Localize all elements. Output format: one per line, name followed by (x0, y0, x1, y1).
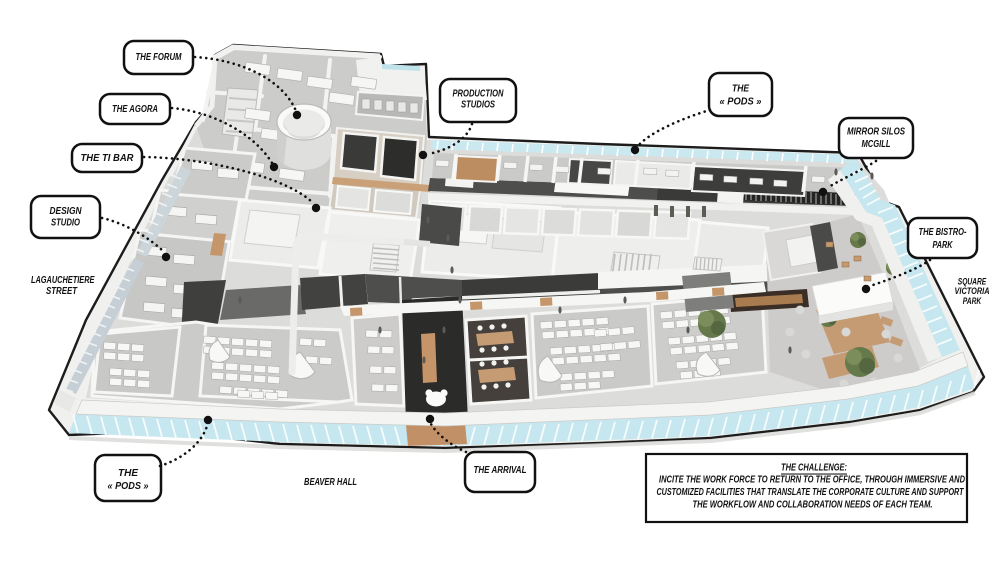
svg-text:INCITE THE WORK FORCE TO RETUR: INCITE THE WORK FORCE TO RETURN TO THE O… (659, 475, 965, 486)
svg-text:STUDIOS: STUDIOS (461, 99, 495, 111)
svg-text:THE WORKFLOW AND COLLABORATION: THE WORKFLOW AND COLLABORATION NEEDS OF … (693, 500, 933, 511)
svg-text:BEAVER HALL: BEAVER HALL (304, 476, 357, 488)
svg-text:THE ARRIVAL: THE ARRIVAL (474, 464, 527, 476)
svg-text:THE: THE (732, 82, 750, 94)
svg-text:THE AGORA: THE AGORA (112, 103, 158, 115)
svg-text:PARK: PARK (963, 296, 982, 307)
svg-text:« PODS »: « PODS » (108, 480, 149, 492)
svg-text:THE FORUM: THE FORUM (136, 51, 182, 63)
svg-text:CUSTOMIZED FACILITIES THAT TRA: CUSTOMIZED FACILITIES THAT TRANSLATE THE… (657, 487, 965, 498)
svg-text:DESIGN: DESIGN (50, 205, 82, 217)
svg-text:THE: THE (118, 467, 139, 479)
svg-text:STREET: STREET (46, 285, 78, 297)
svg-text:PARK: PARK (933, 239, 954, 251)
svg-text:MCGILL: MCGILL (862, 138, 891, 150)
svg-text:« PODS »: « PODS » (720, 95, 762, 107)
svg-text:MIRROR SILOS: MIRROR SILOS (847, 126, 905, 138)
svg-text:PRODUCTION: PRODUCTION (453, 88, 504, 100)
svg-text:THE BISTRO-: THE BISTRO- (919, 226, 967, 238)
svg-text:THE TI BAR: THE TI BAR (81, 152, 134, 164)
svg-text:THE CHALLENGE:: THE CHALLENGE: (781, 462, 847, 474)
svg-text:STUDIO: STUDIO (51, 217, 80, 229)
